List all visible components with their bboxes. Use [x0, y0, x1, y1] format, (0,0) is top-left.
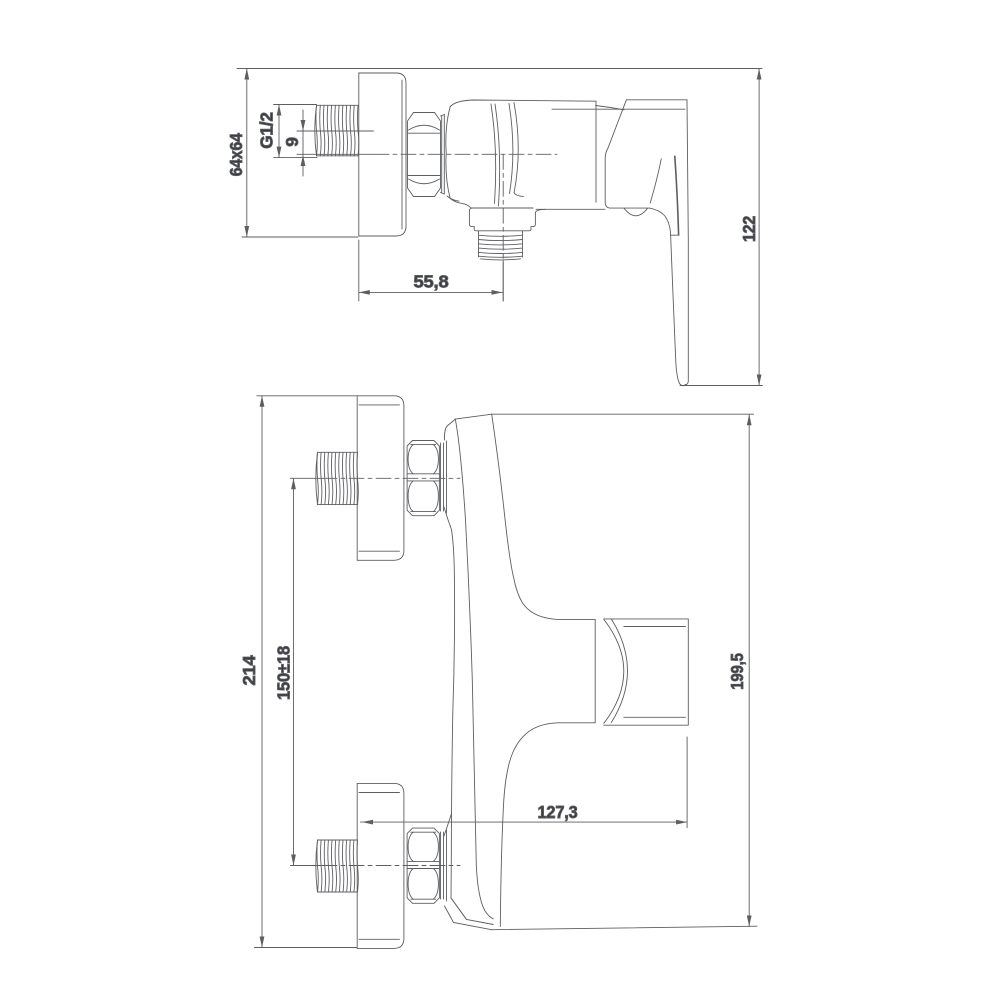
svg-text:55,8: 55,8 [414, 272, 449, 292]
svg-text:150±18: 150±18 [274, 646, 294, 700]
svg-text:G1/2: G1/2 [257, 112, 277, 149]
svg-text:64x64: 64x64 [226, 133, 246, 176]
svg-text:127,3: 127,3 [538, 802, 578, 822]
svg-text:214: 214 [239, 655, 259, 685]
svg-text:122: 122 [739, 216, 759, 242]
svg-text:199,5: 199,5 [727, 653, 747, 690]
svg-text:9: 9 [282, 137, 302, 147]
